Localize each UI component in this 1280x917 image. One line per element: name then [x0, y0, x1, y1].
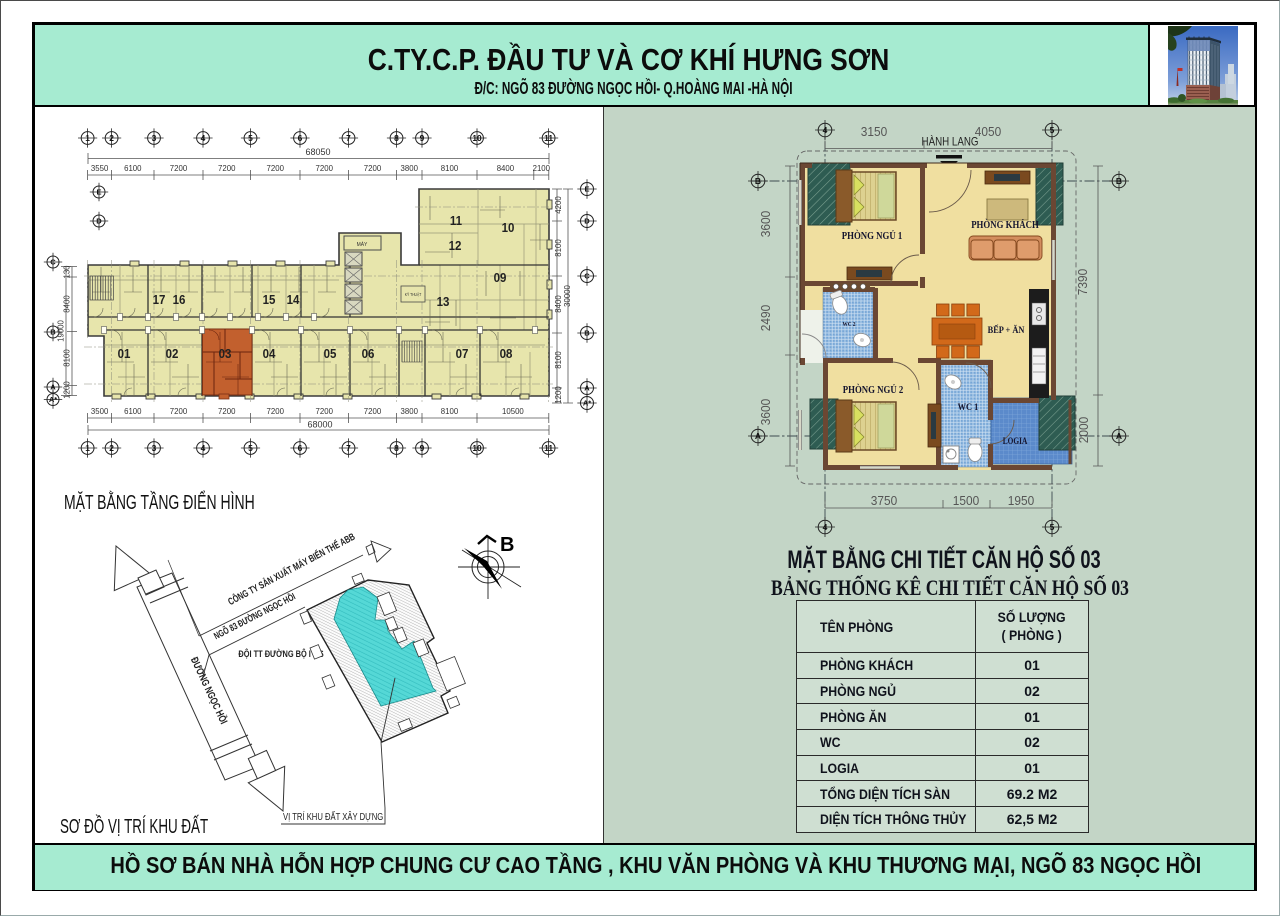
- svg-text:PHÒNG NGỦ 1: PHÒNG NGỦ 1: [842, 229, 903, 242]
- svg-text:14: 14: [287, 293, 300, 308]
- svg-text:9: 9: [420, 443, 425, 453]
- svg-text:7390: 7390: [1076, 269, 1090, 296]
- svg-text:3600: 3600: [759, 211, 773, 238]
- svg-text:4200: 4200: [554, 196, 563, 214]
- svg-text:1: 1: [85, 133, 90, 143]
- svg-text:6: 6: [298, 443, 303, 453]
- svg-text:7200: 7200: [364, 164, 382, 173]
- svg-text:19000: 19000: [56, 320, 65, 342]
- svg-text:8400: 8400: [62, 295, 71, 313]
- svg-text:07: 07: [456, 347, 469, 362]
- svg-text:4: 4: [823, 125, 828, 135]
- svg-text:B: B: [1116, 176, 1122, 186]
- svg-text:7: 7: [346, 133, 351, 143]
- svg-text:E: E: [96, 188, 101, 197]
- svg-text:03: 03: [219, 347, 232, 362]
- svg-text:B: B: [755, 176, 761, 186]
- svg-text:1: 1: [85, 443, 90, 453]
- svg-text:MÁY: MÁY: [357, 241, 368, 248]
- svg-text:KỸ THUẬT: KỸ THUẬT: [405, 291, 422, 297]
- svg-text:E: E: [584, 185, 589, 194]
- svg-text:A*: A*: [49, 395, 57, 404]
- svg-text:01: 01: [118, 347, 131, 362]
- svg-text:15: 15: [263, 293, 276, 308]
- svg-text:4: 4: [201, 443, 206, 453]
- svg-text:5: 5: [248, 133, 253, 143]
- svg-text:3550: 3550: [91, 164, 109, 173]
- svg-text:4: 4: [201, 133, 206, 143]
- svg-text:A: A: [1116, 431, 1122, 441]
- svg-text:7200: 7200: [218, 407, 236, 416]
- svg-text:7200: 7200: [267, 164, 285, 173]
- svg-text:A: A: [584, 384, 590, 393]
- svg-text:8400: 8400: [497, 164, 515, 173]
- svg-text:3: 3: [152, 133, 157, 143]
- svg-text:10: 10: [472, 133, 482, 143]
- svg-text:130: 130: [62, 265, 71, 278]
- svg-text:PHÒNG KHÁCH: PHÒNG KHÁCH: [971, 218, 1039, 231]
- svg-text:7200: 7200: [170, 407, 188, 416]
- svg-text:3750: 3750: [871, 494, 898, 508]
- svg-text:8100: 8100: [554, 239, 563, 257]
- svg-text:NGÕ 83 ĐƯỜNG NGỌC HỒI: NGÕ 83 ĐƯỜNG NGỌC HỒI: [211, 589, 297, 641]
- svg-text:3150: 3150: [861, 125, 888, 139]
- svg-text:8100: 8100: [62, 349, 71, 367]
- svg-text:SƠ ĐỒ VỊ TRÍ KHU ĐẤT: SƠ ĐỒ VỊ TRÍ KHU ĐẤT: [60, 815, 208, 837]
- svg-text:D: D: [96, 217, 102, 226]
- svg-text:68000: 68000: [307, 420, 332, 430]
- svg-text:8400: 8400: [554, 295, 563, 313]
- svg-text:06: 06: [362, 347, 375, 362]
- svg-text:11: 11: [450, 214, 462, 229]
- svg-text:D: D: [584, 217, 590, 226]
- svg-text:5: 5: [248, 443, 253, 453]
- svg-text:13: 13: [437, 295, 450, 310]
- svg-text:C: C: [50, 258, 56, 267]
- svg-text:10: 10: [502, 221, 515, 236]
- svg-text:3800: 3800: [401, 164, 419, 173]
- svg-text:A: A: [755, 431, 761, 441]
- svg-text:11: 11: [544, 443, 553, 453]
- svg-text:12: 12: [449, 239, 462, 254]
- svg-text:2: 2: [109, 133, 114, 143]
- svg-text:7200: 7200: [218, 164, 236, 173]
- svg-text:MẶT BẰNG TẦNG ĐIỂN HÌNH: MẶT BẰNG TẦNG ĐIỂN HÌNH: [64, 490, 255, 513]
- svg-text:B: B: [584, 329, 590, 338]
- svg-text:8: 8: [394, 443, 399, 453]
- svg-text:HÀNH LANG: HÀNH LANG: [922, 135, 979, 149]
- svg-text:1950: 1950: [1008, 494, 1035, 508]
- svg-text:2100: 2100: [533, 164, 551, 173]
- svg-text:7200: 7200: [364, 407, 382, 416]
- svg-text:11: 11: [544, 133, 553, 143]
- svg-text:16: 16: [173, 293, 186, 308]
- svg-text:10: 10: [472, 443, 482, 453]
- svg-text:8100: 8100: [554, 351, 563, 369]
- svg-text:PHÒNG NGỦ 2: PHÒNG NGỦ 2: [843, 383, 904, 396]
- svg-text:1500: 1500: [953, 494, 980, 508]
- svg-text:2490: 2490: [759, 305, 773, 332]
- svg-text:VỊ TRÍ KHU ĐẤT XÂY DỰNG: VỊ TRÍ KHU ĐẤT XÂY DỰNG: [283, 811, 383, 822]
- svg-text:04: 04: [263, 347, 276, 362]
- svg-text:7200: 7200: [316, 164, 334, 173]
- svg-text:8100: 8100: [441, 407, 459, 416]
- svg-text:7200: 7200: [267, 407, 285, 416]
- svg-text:9: 9: [420, 133, 425, 143]
- svg-text:5: 5: [1050, 125, 1055, 135]
- svg-text:LOGIA: LOGIA: [1003, 436, 1028, 446]
- svg-text:6100: 6100: [124, 407, 142, 416]
- svg-text:7200: 7200: [170, 164, 188, 173]
- svg-text:1200: 1200: [554, 386, 563, 404]
- svg-text:WC 1: WC 1: [958, 402, 979, 413]
- svg-text:BẾP + ĂN: BẾP + ĂN: [988, 325, 1025, 336]
- svg-text:3600: 3600: [759, 399, 773, 426]
- svg-text:7: 7: [346, 443, 351, 453]
- svg-text:05: 05: [324, 347, 337, 362]
- svg-text:30000: 30000: [563, 285, 572, 307]
- svg-text:8100: 8100: [441, 164, 459, 173]
- svg-text:4: 4: [823, 522, 828, 532]
- svg-text:17: 17: [153, 293, 166, 308]
- svg-text:5: 5: [1050, 522, 1055, 532]
- svg-text:6: 6: [298, 133, 303, 143]
- svg-text:A*: A*: [583, 399, 591, 408]
- svg-text:09: 09: [494, 271, 507, 286]
- svg-text:3500: 3500: [91, 407, 109, 416]
- svg-text:1200: 1200: [62, 381, 71, 399]
- svg-text:8: 8: [394, 133, 399, 143]
- svg-text:6100: 6100: [124, 164, 142, 173]
- svg-text:7200: 7200: [316, 407, 334, 416]
- svg-text:WC 2: WC 2: [842, 322, 855, 328]
- svg-text:C: C: [584, 272, 590, 281]
- svg-text:10500: 10500: [502, 407, 524, 416]
- svg-text:02: 02: [166, 347, 179, 362]
- svg-text:B: B: [500, 534, 514, 556]
- svg-text:08: 08: [500, 347, 513, 362]
- svg-text:2000: 2000: [1077, 417, 1091, 444]
- svg-text:4050: 4050: [975, 125, 1002, 139]
- svg-text:68050: 68050: [305, 147, 330, 157]
- svg-text:3800: 3800: [401, 407, 419, 416]
- svg-text:3: 3: [152, 443, 157, 453]
- svg-text:2: 2: [109, 443, 114, 453]
